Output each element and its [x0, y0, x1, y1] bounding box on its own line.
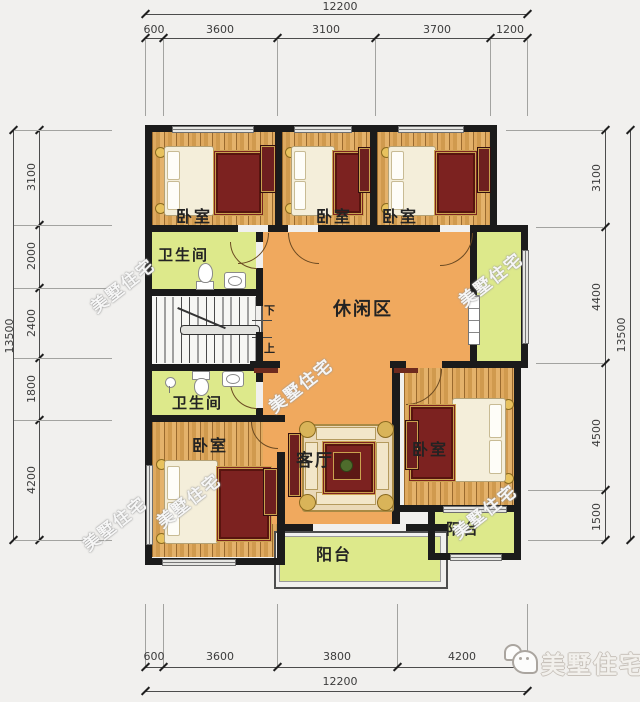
dim-line [39, 130, 40, 540]
dim-line [605, 130, 606, 540]
wall [490, 125, 497, 232]
sofa-cushion [316, 427, 376, 440]
dim-top-total: 12200 [300, 1, 380, 13]
bed-pillow [391, 151, 404, 180]
dim-bottom-seg: 600 [136, 651, 172, 663]
wall [390, 361, 406, 368]
wall [406, 524, 448, 531]
extension-line [277, 604, 278, 666]
round-cushion [299, 421, 316, 438]
sofa-cushion [376, 442, 389, 490]
extension-line [490, 40, 491, 116]
extension-line [277, 40, 278, 116]
dim-left-seg: 2400 [25, 298, 39, 348]
dim-right-seg: 4400 [590, 272, 604, 322]
door-threshold [394, 368, 418, 373]
dim-left-seg: 3100 [25, 152, 39, 202]
bed-pillow [294, 181, 306, 210]
round-cushion [299, 494, 316, 511]
light-fixture-stem [169, 386, 170, 393]
wall [256, 332, 263, 382]
wall [514, 512, 521, 560]
extension-line [527, 40, 528, 116]
extension-line [397, 604, 398, 666]
room-label-living-room: 客厅 [296, 446, 334, 471]
wall [268, 225, 288, 232]
room-label-bathroom-lower: 卫生间 [172, 392, 223, 413]
window [172, 126, 254, 133]
room-label-bedroom-bottom-left: 卧室 [192, 432, 228, 456]
dim-bottom-seg: 4200 [432, 651, 492, 663]
round-cushion [377, 421, 394, 438]
extension-line [528, 490, 604, 491]
balcony-center-railing [274, 531, 448, 589]
bed-pillow [489, 440, 502, 474]
table-plant [340, 459, 353, 472]
stair-up-label: 上 [264, 340, 275, 356]
extension-line [536, 227, 604, 228]
dim-left-seg: 1800 [25, 364, 39, 414]
dim-right-total: 13500 [615, 305, 629, 365]
window [450, 554, 502, 561]
dim-left-seg: 4200 [25, 455, 39, 505]
window [398, 126, 464, 133]
bed-pillow [489, 404, 502, 438]
wechat-icon-dot [526, 657, 529, 660]
extension-line [14, 420, 112, 421]
dim-bottom-total: 12200 [300, 676, 380, 688]
dim-tick [523, 686, 532, 695]
dim-top-seg: 3700 [407, 24, 467, 36]
room-label-bathroom-upper: 卫生间 [158, 244, 209, 265]
ornate-rug [434, 150, 478, 216]
window [294, 126, 352, 133]
bed-pillow [167, 151, 180, 180]
wall [145, 364, 263, 371]
dim-line [145, 691, 527, 692]
dim-tick [523, 9, 532, 18]
dim-left-seg: 2000 [25, 231, 39, 281]
balcony-center-floor [279, 536, 441, 582]
dim-line [13, 130, 14, 540]
room-label-bedroom-top-left: 卧室 [176, 203, 212, 227]
wall [370, 125, 377, 232]
wechat-icon [512, 650, 538, 674]
bed-pillow [294, 151, 306, 180]
window [162, 559, 236, 566]
dim-top-seg: 3100 [296, 24, 356, 36]
dim-tick [626, 535, 635, 544]
extension-line [145, 40, 146, 116]
wall [275, 125, 282, 232]
dim-top-seg: 3600 [190, 24, 250, 36]
room-label-bedroom-bottom-right: 卧室 [412, 436, 448, 460]
wall [256, 268, 263, 306]
brand-logo-text: 美墅住宅 [541, 645, 637, 673]
ornate-rug [213, 150, 264, 216]
wardrobe [260, 145, 276, 193]
wardrobe [477, 147, 491, 193]
dim-bottom-seg: 3800 [307, 651, 367, 663]
toilet-bowl [198, 263, 213, 283]
extension-line [506, 130, 604, 131]
room-label-bedroom-top-middle: 卧室 [316, 203, 352, 227]
wechat-icon-dot [519, 657, 522, 660]
wall [145, 415, 285, 422]
room-label-leisure-area: 休闲区 [333, 295, 393, 321]
extension-line [536, 363, 604, 364]
wall [283, 524, 313, 531]
dim-left-total: 13500 [3, 307, 17, 365]
dim-right-seg: 1500 [590, 492, 604, 542]
wardrobe [358, 147, 371, 193]
extension-line [14, 358, 112, 359]
wall [145, 289, 263, 296]
light-fixture [165, 377, 176, 388]
extension-line [14, 225, 112, 226]
dim-line [630, 130, 631, 540]
stair-down-label: 下 [264, 302, 275, 318]
extension-line [163, 40, 164, 116]
stair-balustrade [261, 306, 263, 332]
room-label-balcony-center: 阳台 [316, 541, 352, 565]
door-threshold [254, 368, 278, 373]
extension-line [375, 40, 376, 116]
wall [250, 361, 280, 368]
dim-right-seg: 4500 [590, 408, 604, 458]
extension-line [14, 130, 112, 131]
dim-line [145, 38, 527, 39]
sink-basin [226, 374, 240, 384]
room-label-bedroom-top-right: 卧室 [382, 203, 418, 227]
wall [277, 452, 285, 565]
dim-line [145, 667, 527, 668]
floor-plan-canvas: 12200 600 3600 3100 3700 1200 600 3600 3… [0, 0, 640, 702]
watermark: 美墅住宅 [76, 489, 151, 555]
dim-bottom-seg: 3600 [190, 651, 250, 663]
sink-basin [228, 276, 242, 286]
dim-line [145, 14, 527, 15]
dresser [263, 468, 278, 516]
wall [442, 361, 528, 368]
dim-right-seg: 3100 [590, 153, 604, 203]
round-cushion [377, 494, 394, 511]
